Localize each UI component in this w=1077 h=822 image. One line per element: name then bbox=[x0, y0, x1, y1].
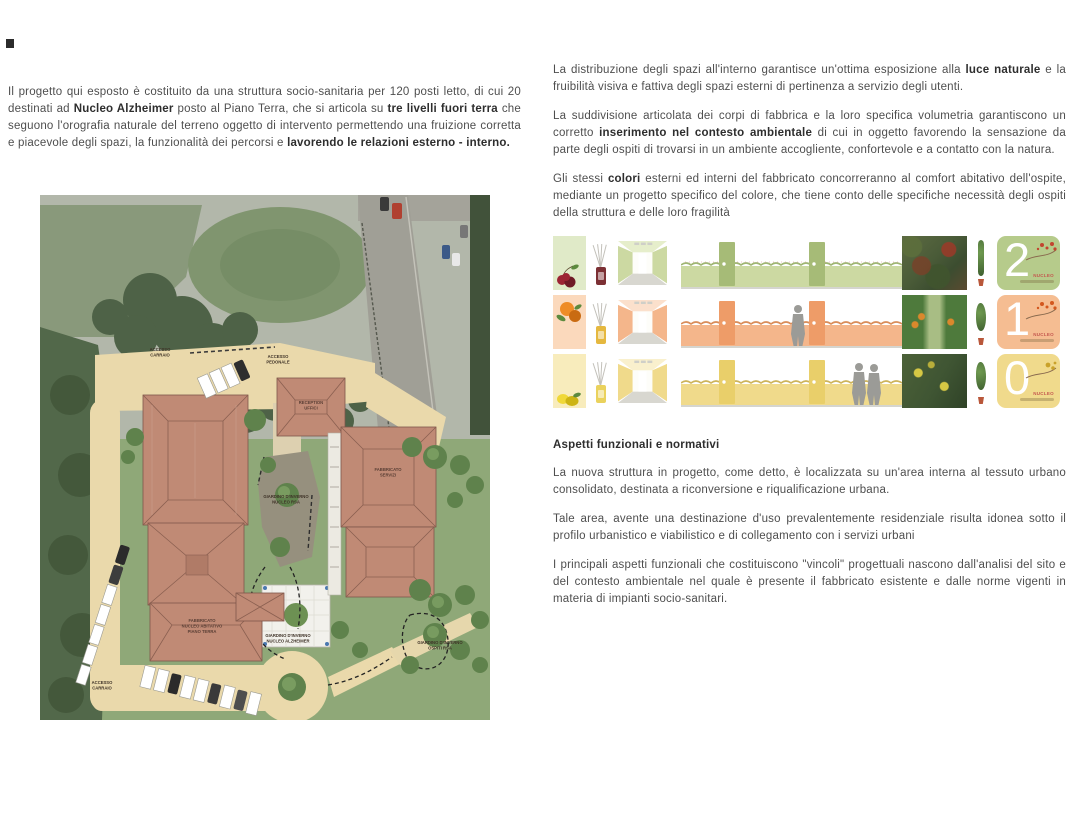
vegetation-photo-orange-orchard bbox=[902, 295, 967, 349]
section-paragraph-2: Tale area, avente una destinazione d'uso… bbox=[553, 511, 1066, 545]
badge-subcaption bbox=[1020, 398, 1054, 401]
right-column: La distribuzione degli spazi all'interno… bbox=[553, 62, 1066, 620]
oranges-icon bbox=[553, 295, 586, 349]
level-badge-0: 0 NUCLEO bbox=[997, 354, 1060, 408]
sketch-flowers-icon bbox=[1024, 356, 1058, 382]
corridor-render-yellow bbox=[618, 354, 667, 408]
cherries-icon bbox=[553, 236, 586, 290]
paragraph-luce-naturale: La distribuzione degli spazi all'interno… bbox=[553, 62, 1066, 96]
site-plan-image: ACCESSOCARRAIO ACCESSOPEDONALE RECEPTION… bbox=[40, 195, 490, 720]
page-corner-mark bbox=[6, 39, 14, 48]
document-page: Il progetto qui esposto è costituito da … bbox=[0, 0, 1077, 822]
badge-caption: NUCLEO bbox=[1033, 391, 1054, 396]
potted-plant-icon bbox=[974, 354, 988, 408]
reed-diffuser-icon bbox=[588, 295, 614, 349]
paragraph-inserimento-ambientale: La suddivisione articolata dei corpi di … bbox=[553, 108, 1066, 159]
palette-strip-level-0: 0 NUCLEO bbox=[553, 354, 1066, 408]
label-accesso-carraio-top: ACCESSOCARRAIO bbox=[150, 347, 171, 358]
color-swatch-green bbox=[553, 236, 586, 290]
badge-subcaption bbox=[1020, 339, 1054, 342]
color-palette-strips: 2 NUCLEO bbox=[553, 236, 1066, 408]
level-badge-1: 1 NUCLEO bbox=[997, 295, 1060, 349]
badge-caption: NUCLEO bbox=[1033, 332, 1054, 337]
paragraph-colori: Gli stessi colori esterni ed interni del… bbox=[553, 171, 1066, 222]
palette-strip-level-1: 1 NUCLEO bbox=[553, 295, 1066, 349]
label-giardino-alzheimer: GIARDINO D'INVERNONUCLEO ALZHEIMER bbox=[265, 633, 311, 644]
palette-strip-level-2: 2 NUCLEO bbox=[553, 236, 1066, 290]
potted-plant-icon bbox=[974, 236, 988, 290]
elevation-drawing-orange bbox=[681, 295, 902, 349]
elevation-drawing-green bbox=[681, 236, 902, 290]
sketch-flowers-icon bbox=[1024, 238, 1058, 264]
color-swatch-yellow bbox=[553, 354, 586, 408]
section-heading: Aspetti funzionali e normativi bbox=[553, 439, 1066, 451]
badge-caption: NUCLEO bbox=[1033, 273, 1054, 278]
potted-plant-icon bbox=[974, 295, 988, 349]
level-badge-2: 2 NUCLEO bbox=[997, 236, 1060, 290]
label-accesso-pedonale: ACCESSOPEDONALE bbox=[266, 354, 289, 365]
color-swatch-orange bbox=[553, 295, 586, 349]
corridor-render-orange bbox=[618, 295, 667, 349]
building-left-wing bbox=[143, 395, 248, 525]
sketch-flowers-icon bbox=[1024, 297, 1058, 323]
site-plan-svg: ACCESSOCARRAIO ACCESSOPEDONALE RECEPTION… bbox=[40, 195, 490, 720]
section-paragraph-3: I principali aspetti funzionali che cost… bbox=[553, 557, 1066, 608]
building-left-pavilion bbox=[148, 523, 244, 605]
vegetation-photo-lemon-grove bbox=[902, 354, 967, 408]
intro-paragraph: Il progetto qui esposto è costituito da … bbox=[8, 84, 521, 152]
reed-diffuser-icon bbox=[588, 236, 614, 290]
corridor-render-green bbox=[618, 236, 667, 290]
reed-diffuser-icon bbox=[588, 354, 614, 408]
elevation-drawing-yellow bbox=[681, 354, 902, 408]
label-accesso-carraio-bottom: ACCESSOCARRAIO bbox=[92, 680, 113, 691]
section-paragraph-1: La nuova struttura in progetto, come det… bbox=[553, 465, 1066, 499]
lemons-icon bbox=[553, 354, 586, 408]
badge-subcaption bbox=[1020, 280, 1054, 283]
vegetation-photo-red-tree bbox=[902, 236, 967, 290]
